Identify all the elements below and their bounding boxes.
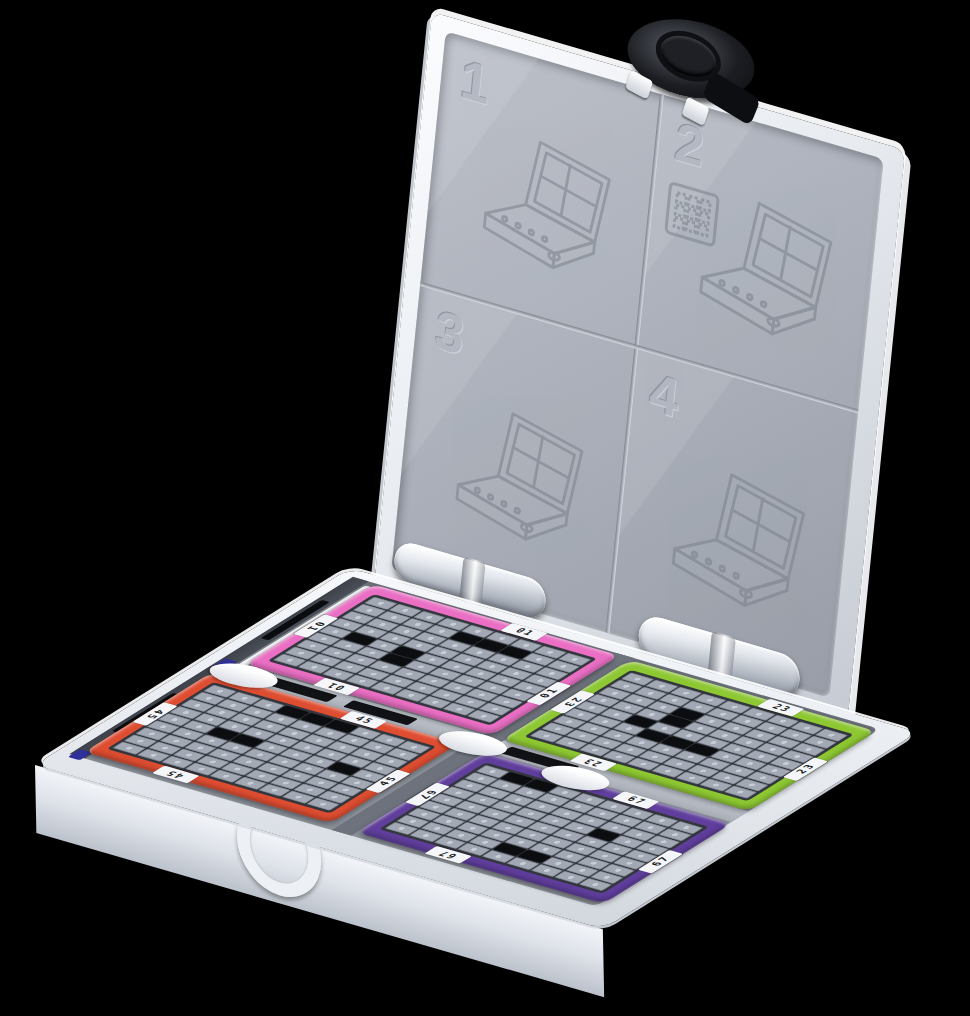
render-stage: 1 2 3 4 [0,0,970,1016]
latch-icon [624,3,758,115]
case-diagram-icon [464,89,647,337]
case-diagram-icon [680,152,870,402]
